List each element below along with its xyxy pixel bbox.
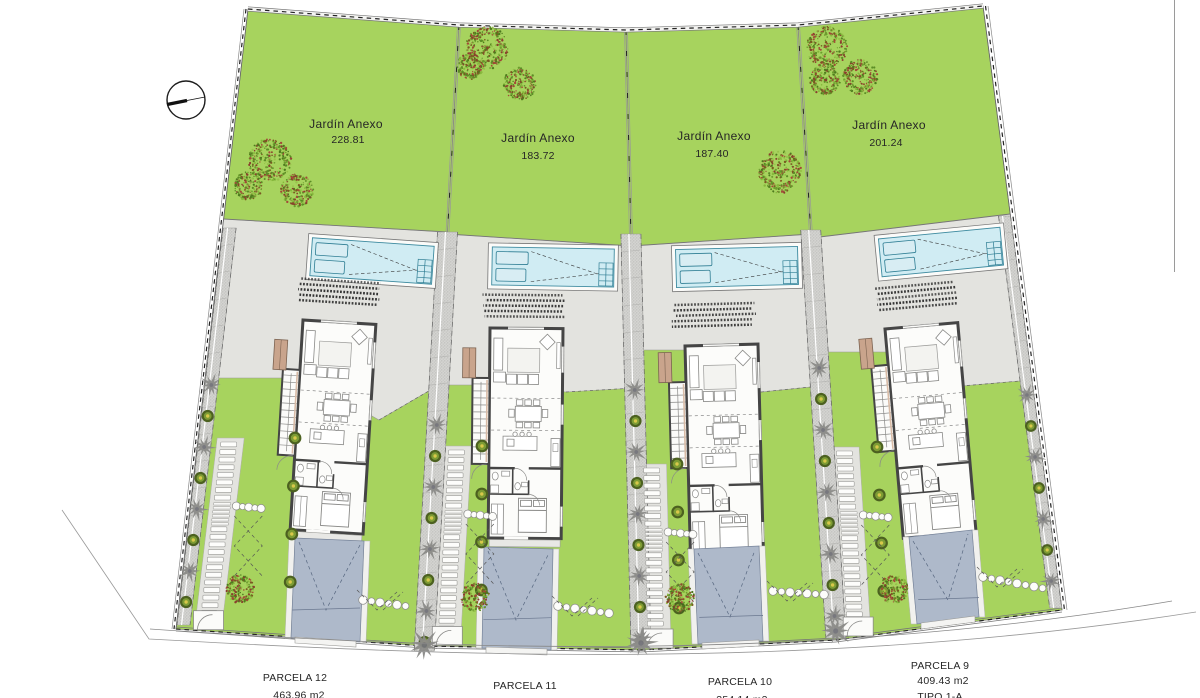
svg-text:409.43 m2: 409.43 m2 bbox=[917, 675, 968, 687]
svg-text:354.14 m2: 354.14 m2 bbox=[716, 694, 767, 698]
svg-text:187.40: 187.40 bbox=[695, 148, 728, 160]
svg-text:Jardín Anexo: Jardín Anexo bbox=[501, 131, 575, 145]
svg-text:Jardín Anexo: Jardín Anexo bbox=[852, 118, 926, 132]
svg-text:PARCELA 12: PARCELA 12 bbox=[263, 672, 327, 684]
svg-text:PARCELA 11: PARCELA 11 bbox=[493, 680, 556, 692]
svg-text:Jardín Anexo: Jardín Anexo bbox=[309, 117, 383, 131]
svg-text:201.24: 201.24 bbox=[869, 137, 902, 149]
svg-text:463.96 m2: 463.96 m2 bbox=[273, 690, 324, 698]
svg-text:228.81: 228.81 bbox=[331, 134, 364, 146]
svg-text:PARCELA 10: PARCELA 10 bbox=[708, 676, 772, 688]
svg-text:183.72: 183.72 bbox=[521, 150, 554, 162]
svg-text:PARCELA 9: PARCELA 9 bbox=[911, 660, 969, 672]
svg-text:Jardín Anexo: Jardín Anexo bbox=[677, 129, 751, 143]
svg-text:TIPO 1-A: TIPO 1-A bbox=[917, 691, 962, 698]
